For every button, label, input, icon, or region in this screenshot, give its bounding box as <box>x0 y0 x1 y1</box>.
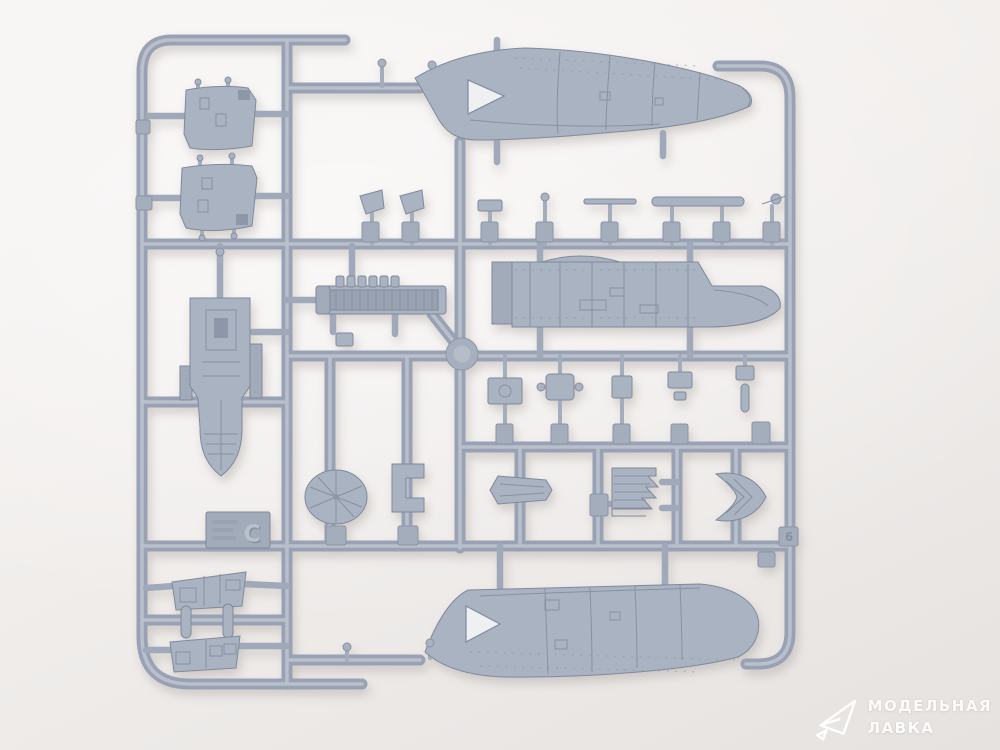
blade-part-1 <box>360 190 384 214</box>
c-clamp-part <box>392 464 424 545</box>
antenna-mast <box>541 193 549 201</box>
fuselage-side-panel <box>492 256 780 327</box>
pitot-tube <box>584 199 636 204</box>
watermark-paper-plane-icon <box>814 692 860 744</box>
engine-bay-block <box>316 276 446 346</box>
watermark-text: МОДЕЛЬНАЯ ЛАВКА <box>868 696 992 740</box>
flap-panel-1 <box>172 572 246 610</box>
flap-panel-2 <box>170 636 240 672</box>
sprue-frame-group: 6 <box>136 40 798 684</box>
blade-part-2 <box>400 190 424 214</box>
small-parts-row-middle <box>488 366 770 444</box>
upper-fuselage-half <box>378 48 752 140</box>
sprue-illustration: 6 <box>0 0 1000 750</box>
sprue-letter: C <box>244 521 261 547</box>
small-fitting-part <box>736 366 754 380</box>
info-tag: C C <box>206 512 270 549</box>
small-box-part <box>668 372 692 388</box>
teardrop-blister <box>542 256 620 262</box>
canopy-hatch-panel-2 <box>180 153 257 241</box>
small-square-part <box>336 333 353 346</box>
cylinder-part <box>546 374 574 400</box>
small-wing-part <box>490 476 552 504</box>
frame-tag-number: 6 <box>785 530 793 544</box>
watermark: МОДЕЛЬНАЯ ЛАВКА <box>814 692 992 744</box>
watermark-line2: ЛАВКА <box>868 718 992 740</box>
v-intake-part <box>716 473 766 521</box>
sprue-photo: 6 <box>0 0 1000 750</box>
panel-bracket-part <box>488 378 522 404</box>
small-panel-part <box>478 200 502 211</box>
long-rod-part <box>652 197 744 206</box>
watermark-line1: МОДЕЛЬНАЯ <box>868 696 992 718</box>
spinner-disc <box>305 470 367 545</box>
canopy-hatch-panel-1 <box>184 77 256 150</box>
small-bracket-part <box>612 376 632 398</box>
